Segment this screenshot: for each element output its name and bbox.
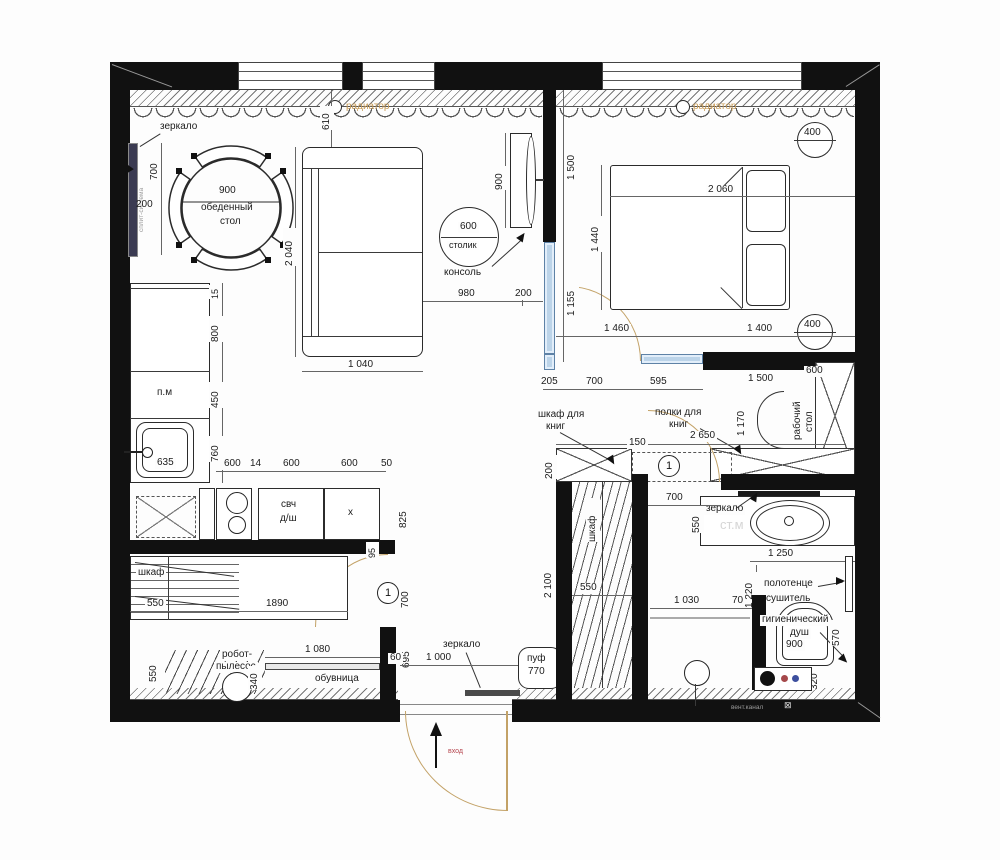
mirror — [465, 690, 520, 696]
entrance-arrow-stem — [435, 736, 437, 768]
wall-left — [110, 62, 130, 722]
mirror-label: зеркало — [160, 122, 197, 133]
robot-vacuum-label: робот- — [220, 650, 254, 661]
dim-line — [610, 196, 855, 197]
work-desk-label: рабочий — [793, 390, 803, 440]
work-desk-label: стол — [805, 402, 815, 432]
dim-label: 1 000 — [424, 653, 453, 664]
sofa-line — [311, 168, 312, 336]
towel-dryer-label: полотенце — [762, 579, 815, 590]
dim-line — [750, 561, 855, 562]
dim-label: 700 — [150, 152, 160, 180]
radiator-icon — [676, 100, 690, 114]
cold-water-icon — [792, 675, 799, 682]
dim-label: 205 — [539, 377, 560, 388]
arrow-icon — [836, 577, 845, 585]
glass-partition — [544, 242, 555, 354]
dim-label: 770 — [528, 667, 545, 678]
radiator-label: радиатор — [693, 102, 736, 113]
entrance-door-leaf — [506, 711, 508, 811]
dim-line — [650, 608, 752, 609]
wall-divider — [543, 90, 556, 242]
towel-dryer — [845, 556, 853, 612]
dim-label: 200 — [136, 200, 153, 211]
leader-line — [140, 133, 161, 147]
dim-line — [216, 471, 386, 472]
counter-line — [130, 371, 210, 372]
hygienic-shower-label: душ — [788, 628, 811, 639]
shower-screen — [650, 617, 750, 619]
wall-closet-left — [556, 482, 572, 700]
faucet-icon — [124, 451, 144, 453]
dim-line — [400, 665, 518, 666]
dim-line — [161, 143, 162, 255]
dim-label: 600 — [804, 366, 825, 377]
dim-label: 2 060 — [706, 185, 735, 196]
shoe-rack-label: обувница — [313, 674, 361, 685]
dim-label: 610 — [320, 106, 334, 130]
washing-machine-watermark: ст.м — [720, 518, 744, 532]
wall-closet-right — [632, 490, 648, 700]
arrow-icon — [838, 653, 850, 665]
bookcase-label: книг — [546, 422, 565, 433]
bookcase — [556, 448, 632, 482]
sofa-line — [318, 252, 422, 253]
bookcase-label: шкаф для — [538, 410, 584, 421]
dim-line — [441, 237, 497, 238]
hob-label: х — [348, 508, 353, 519]
dim-label: 1 030 — [672, 596, 701, 607]
dim-line — [543, 389, 703, 390]
radiator-label: радиатор — [346, 102, 389, 113]
pillow — [746, 170, 786, 232]
tv-mount — [536, 179, 544, 181]
dim-label: 1 040 — [346, 360, 375, 371]
washing-machine-label: п.м — [157, 388, 172, 399]
floor-drain-icon — [684, 660, 710, 686]
wall-bottom — [110, 700, 400, 722]
dim-label: 825 — [397, 500, 411, 528]
dim-label: 550 — [147, 658, 161, 682]
drain-stem — [695, 684, 696, 706]
dim-label: 700 — [584, 377, 605, 388]
dim-label: 2 040 — [283, 228, 297, 266]
wall-bath-top — [632, 474, 648, 490]
door-mark: 1 — [377, 582, 399, 604]
closet-divider — [602, 482, 603, 688]
dim-label: 1 080 — [303, 645, 332, 656]
dim-label: 50 — [379, 459, 394, 470]
dim-line — [563, 242, 564, 362]
dim-label: 550 — [690, 505, 704, 533]
shelves-label: книг — [669, 420, 688, 431]
dim-line — [648, 505, 721, 506]
vent-label: вент.канал — [731, 705, 763, 712]
dim-label: 14 — [248, 459, 263, 470]
hygienic-shower-label: гигиенический — [760, 615, 830, 626]
dishwasher-label: д/ш — [280, 514, 297, 525]
wall-hall — [380, 627, 396, 700]
counter-line — [130, 418, 210, 419]
dim-label: 1 500 — [746, 374, 775, 385]
dining-table-label: обеденный — [201, 203, 253, 214]
wall-top-pier — [343, 62, 362, 90]
floor-plan: радиатор радиатор зеркало сплит-система … — [0, 0, 1000, 860]
mirror-label: зеркало — [443, 640, 480, 651]
dim-label: 95 — [366, 542, 379, 558]
sofa-line — [303, 168, 422, 169]
dim-label: 550 — [578, 583, 599, 594]
dim-line — [265, 657, 380, 658]
door-mark: 1 — [658, 455, 680, 477]
dim-label: 600 — [222, 459, 243, 470]
window — [602, 62, 802, 90]
tv — [526, 136, 536, 225]
shelves-label: полки для — [655, 408, 701, 419]
dim-label: 70 — [730, 596, 745, 607]
wall-bath-top — [721, 474, 855, 490]
dim-label: 1 440 — [589, 216, 603, 252]
hob-burner-icon — [228, 516, 246, 534]
leader-line — [465, 652, 480, 688]
dim-label: 340 — [248, 666, 262, 690]
sofa-line — [303, 336, 422, 337]
dim-label: 570 — [830, 620, 844, 646]
desk-chair — [757, 391, 784, 449]
bed-line — [742, 167, 743, 308]
dim-line — [794, 140, 836, 141]
dim-label: 15 — [209, 285, 222, 299]
dim-label: 150 — [627, 438, 648, 449]
hot-water-icon — [781, 675, 788, 682]
wardrobe-label: шкаф — [136, 568, 166, 579]
wall-right — [855, 62, 880, 722]
dining-table-label: стол — [220, 217, 241, 228]
dim-label: 1 500 — [565, 146, 579, 180]
shoe-rack — [265, 663, 380, 670]
pillow — [746, 244, 786, 306]
dim-label: 600 — [281, 459, 302, 470]
dim-label: 400 — [804, 320, 821, 331]
split-system-label: сплит-система — [139, 150, 146, 232]
dim-label: 595 — [648, 377, 669, 388]
dim-line — [794, 332, 836, 333]
counter-line — [130, 288, 210, 289]
fridge — [136, 496, 196, 538]
wall-bottom — [512, 700, 880, 722]
dim-label: 450 — [209, 382, 223, 408]
window — [362, 62, 435, 90]
dim-line — [556, 444, 845, 445]
dim-label: 700 — [664, 493, 685, 504]
dim-line — [563, 90, 564, 242]
entrance-label: вход — [448, 748, 463, 755]
dim-line — [130, 611, 348, 612]
dim-label: 700 — [399, 582, 413, 608]
dim-line — [556, 336, 855, 337]
dim-label: 550 — [145, 599, 166, 610]
glass-partition — [641, 354, 703, 364]
dim-line — [302, 371, 423, 372]
side-table-label: столик — [447, 241, 479, 250]
window — [238, 62, 343, 90]
dim-label: 900 — [784, 640, 805, 651]
pouf-label: пуф — [527, 654, 546, 665]
faucet-icon — [142, 447, 153, 458]
dim-line — [572, 595, 632, 596]
entrance-arrow — [430, 722, 442, 736]
dim-label: 2 650 — [688, 431, 717, 442]
dim-label: 600 — [458, 222, 479, 233]
wall-top — [435, 62, 602, 90]
dim-label: 800 — [209, 316, 223, 342]
microwave-label: свч — [281, 500, 296, 511]
dim-label: 980 — [456, 289, 477, 300]
dim-label: 200 — [543, 455, 557, 479]
door-arc-entrance — [405, 711, 508, 811]
dim-line — [423, 301, 543, 302]
dim-label: 60 — [388, 653, 403, 664]
dim-label: 1 400 — [745, 324, 774, 335]
dim-label: 2 100 — [542, 558, 556, 598]
wall-kitchen-hall — [110, 540, 395, 554]
flush-button-icon — [760, 671, 775, 686]
dim-label: 1890 — [264, 599, 290, 610]
basin-drain-icon — [784, 516, 794, 526]
dim-label: 1 250 — [766, 549, 795, 560]
glass-partition — [544, 354, 555, 370]
dim-label: 200 — [513, 289, 534, 300]
dim-label: 1 155 — [565, 282, 579, 316]
threshold — [400, 704, 512, 705]
dim-label: 635 — [155, 458, 176, 469]
dim-label: 1 460 — [602, 324, 631, 335]
dim-label: 760 — [209, 436, 223, 462]
dim-label: 900 — [217, 186, 238, 197]
hob-burner-icon — [226, 492, 248, 514]
dim-label: 1 170 — [735, 402, 749, 436]
dim-label: 400 — [804, 128, 821, 139]
console-label: консоль — [444, 268, 481, 279]
vent-icon: ⊠ — [784, 701, 792, 710]
dim-label: 900 — [493, 166, 507, 190]
closet-label: шкаф — [586, 498, 600, 542]
dim-label: 600 — [339, 459, 360, 470]
cabinet — [199, 488, 215, 540]
